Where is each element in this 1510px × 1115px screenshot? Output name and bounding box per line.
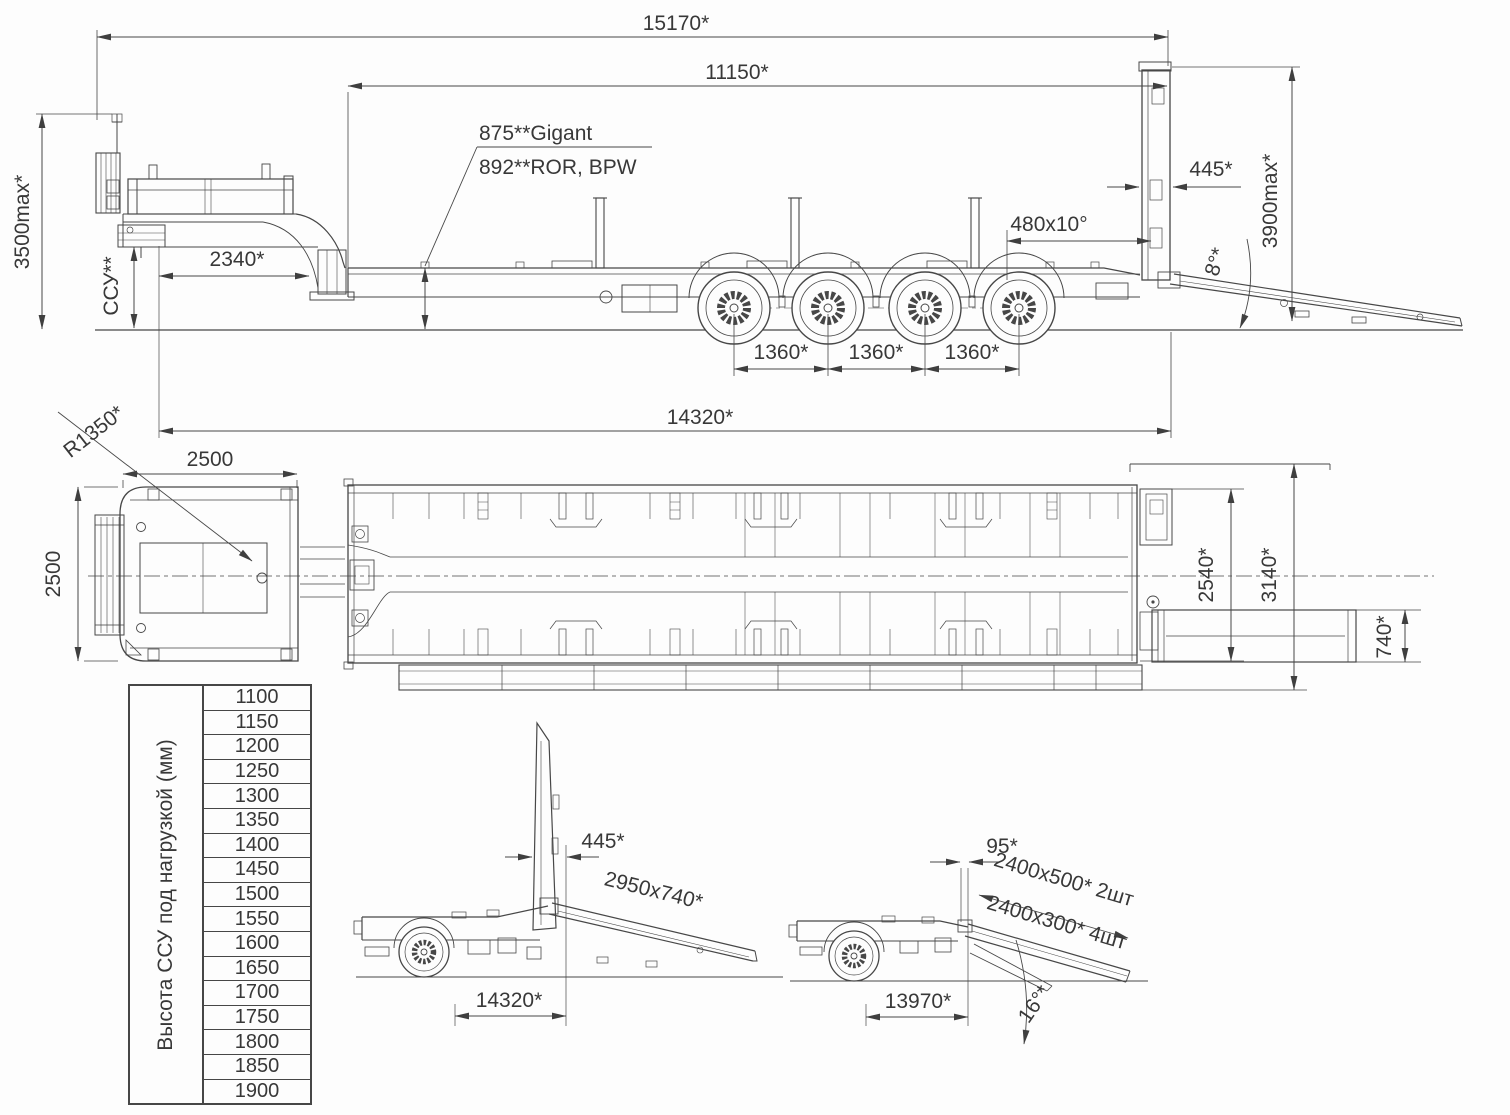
table-row: 1850 xyxy=(204,1054,310,1079)
technical-drawing-page: 15170* 11150* 875**Gigant 892**ROR, BPW … xyxy=(0,0,1510,1115)
dim-deck-height-ror-bpw: 892**ROR, BPW xyxy=(479,156,637,179)
table-row: 1450 xyxy=(204,857,310,882)
gooseneck xyxy=(96,114,354,300)
table-row: 1600 xyxy=(204,931,310,956)
side-elevation-view: 15170* 11150* 875**Gigant 892**ROR, BPW … xyxy=(11,12,1463,438)
table-row: 1400 xyxy=(204,833,310,858)
dim-gooseneck-width: 2500 xyxy=(187,448,234,471)
ssu-height-table: Высота ССУ под нагрузкой (мм) 1100115012… xyxy=(128,684,312,1105)
table-row: 1350 xyxy=(204,808,310,833)
table-row: 1500 xyxy=(204,882,310,907)
dim-deck-length: 11150* xyxy=(705,61,768,84)
dim-kingpin-to-rear: 14320* xyxy=(667,406,734,429)
wheel xyxy=(399,927,449,977)
angle-view-labels: 95* 2400x500* 2шт 2400x300* 4шт 13970* 1… xyxy=(885,835,1137,1027)
table-row: 1650 xyxy=(204,956,310,981)
table-row: 1250 xyxy=(204,759,310,784)
table-row: 1800 xyxy=(204,1029,310,1054)
dim-overall-width: 3140* xyxy=(1258,548,1281,603)
table-row: 1200 xyxy=(204,734,310,759)
plan-neck xyxy=(300,547,374,597)
dim-corner-radius: R1350* xyxy=(59,401,128,462)
trailer-rear-body xyxy=(354,898,558,959)
dim-axle-spacing-1: 1360* xyxy=(754,341,809,364)
dim-fifth-wheel-height: ССУ** xyxy=(100,256,123,315)
ssu-table-rows: 1100115012001250130013501400145015001550… xyxy=(204,686,310,1103)
dim-kingpin-to-rear-2: 14320* xyxy=(476,989,543,1012)
raised-flap xyxy=(533,723,559,930)
lowered-ramp xyxy=(549,903,757,967)
dim-overall-length: 15170* xyxy=(643,12,710,35)
dim-ramp-width: 740* xyxy=(1373,615,1396,658)
trailer-rear-body xyxy=(789,916,972,955)
table-header-label: Высота ССУ под нагрузкой (мм) xyxy=(154,739,178,1050)
table-row: 1900 xyxy=(204,1079,310,1104)
dim-gooseneck-length: 2500 xyxy=(42,551,65,598)
stake-posts xyxy=(552,198,982,268)
dim-max-height: 3500max* xyxy=(11,175,34,270)
dim-kingpin-to-ramp: 13970* xyxy=(885,990,952,1013)
side-view-labels: 15170* 11150* 875**Gigant 892**ROR, BPW … xyxy=(11,12,1282,429)
dim-deck-height-gigant: 875**Gigant xyxy=(479,122,592,145)
dim-ramp-size: 2950x740* xyxy=(602,867,705,914)
angle-ramp-view: 95* 2400x500* 2шт 2400x300* 4шт 13970* 1… xyxy=(789,835,1148,1044)
table-row: 1300 xyxy=(204,783,310,808)
rear-flap xyxy=(1139,62,1180,288)
rear-ramp xyxy=(1170,274,1462,326)
table-row: 1750 xyxy=(204,1005,310,1030)
dim-kingpin-to-gooseneck: 2340* xyxy=(210,248,265,271)
plan-rear-section xyxy=(1130,464,1330,661)
dim-ramp-angle: 8°* xyxy=(1201,245,1232,279)
plan-side-boards-strip xyxy=(399,665,1142,690)
plan-deck xyxy=(344,479,1137,669)
dim-axle-spacing-3: 1360* xyxy=(945,341,1000,364)
dim-max-ramp-height: 3900max* xyxy=(1259,154,1282,249)
dim-beavertail: 480x10° xyxy=(1010,213,1087,236)
dim-rear-flap-width: 445* xyxy=(1189,158,1232,181)
table-row: 1550 xyxy=(204,906,310,931)
plan-tiedown-brackets xyxy=(550,493,992,655)
plan-gooseneck-block xyxy=(95,487,298,661)
dim-deck-width: 2540* xyxy=(1195,548,1218,603)
side-view-dimensions xyxy=(36,30,1300,438)
table-row: 1150 xyxy=(204,710,310,735)
flap-ramp-view: 445* 2950x740* 14320* xyxy=(354,723,783,1026)
dim-flap-width: 445* xyxy=(581,830,624,853)
table-row: 1100 xyxy=(204,686,310,710)
plan-labels: R1350* 2500 2500 2540* 3140* 740* xyxy=(42,401,1396,658)
wheel xyxy=(829,931,879,981)
plan-view: R1350* 2500 2500 2540* 3140* 740* xyxy=(42,401,1434,690)
plan-ramp-stowed xyxy=(1152,610,1356,662)
table-row: 1700 xyxy=(204,980,310,1005)
table-header-cell: Высота ССУ под нагрузкой (мм) xyxy=(130,686,204,1103)
dim-axle-spacing-2: 1360* xyxy=(849,341,904,364)
